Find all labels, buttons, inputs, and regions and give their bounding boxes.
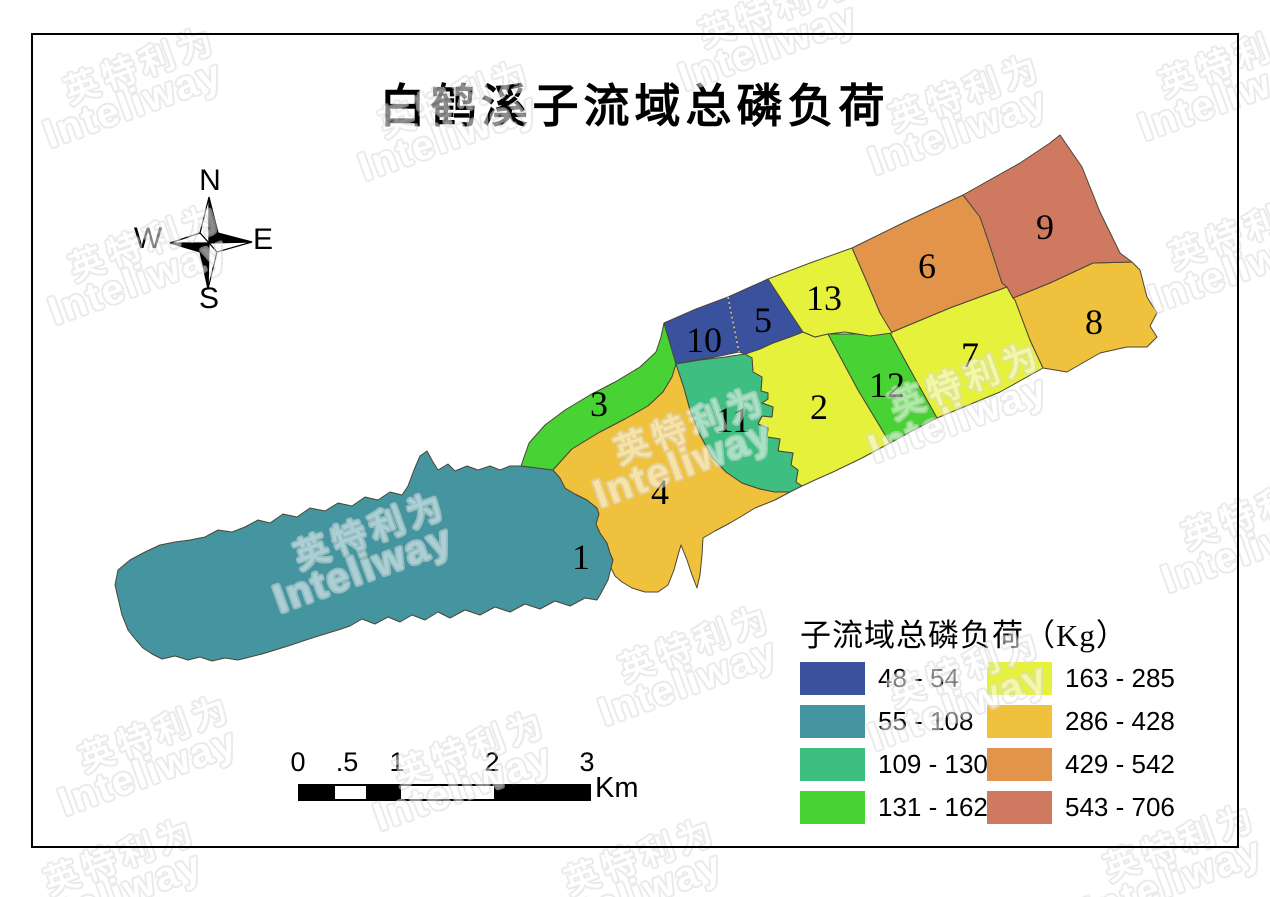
legend-item: 55 - 108 xyxy=(800,705,988,738)
region-label-13: 13 xyxy=(806,278,842,318)
legend-swatch xyxy=(800,662,865,695)
region-label-5: 5 xyxy=(754,300,772,340)
legend-swatch xyxy=(987,705,1052,738)
legend-item: 163 - 285 xyxy=(987,662,1175,695)
region-label-10: 10 xyxy=(686,320,722,360)
region-label-9: 9 xyxy=(1036,207,1054,247)
region-label-2: 2 xyxy=(810,387,828,427)
compass-south-label: S xyxy=(199,282,219,316)
scalebar: 0.5123 Km xyxy=(298,747,658,807)
legend-title: 子流域总磷负荷（Kg） xyxy=(800,610,1220,655)
legend: 子流域总磷负荷（Kg） 48 - 5455 - 108109 - 130131 … xyxy=(800,610,1220,840)
scalebar-unit: Km xyxy=(595,772,639,805)
region-label-8: 8 xyxy=(1085,302,1103,342)
scalebar-tick: .5 xyxy=(336,747,359,778)
scalebar-tick: 1 xyxy=(389,747,404,778)
legend-label: 131 - 162 xyxy=(878,792,988,823)
scalebar-bar xyxy=(298,784,591,801)
page-title: 白鹤溪子流域总磷负荷 xyxy=(31,70,1238,136)
legend-label: 543 - 706 xyxy=(1065,792,1175,823)
scalebar-tick: 3 xyxy=(579,747,594,778)
compass-east-label: E xyxy=(253,223,273,257)
legend-item: 429 - 542 xyxy=(987,748,1175,781)
region-label-1: 1 xyxy=(572,537,590,577)
region-label-7: 7 xyxy=(961,335,979,375)
legend-label: 286 - 428 xyxy=(1065,706,1175,737)
region-1 xyxy=(115,451,613,661)
legend-swatch xyxy=(800,705,865,738)
legend-swatch xyxy=(987,748,1052,781)
legend-col-2: 163 - 285286 - 428429 - 542543 - 706 xyxy=(987,662,1175,834)
legend-swatch xyxy=(800,748,865,781)
legend-col-1: 48 - 5455 - 108109 - 130131 - 162 xyxy=(800,662,988,834)
legend-item: 131 - 162 xyxy=(800,791,988,824)
legend-item: 48 - 54 xyxy=(800,662,988,695)
scalebar-segment xyxy=(366,786,399,799)
region-label-6: 6 xyxy=(918,246,936,286)
compass-rose-icon xyxy=(170,197,252,289)
legend-item: 543 - 706 xyxy=(987,791,1175,824)
legend-item: 109 - 130 xyxy=(800,748,988,781)
region-label-11: 11 xyxy=(716,400,751,440)
region-label-3: 3 xyxy=(590,384,608,424)
legend-label: 109 - 130 xyxy=(878,749,988,780)
region-label-4: 4 xyxy=(651,472,669,512)
scalebar-segment xyxy=(333,786,366,799)
legend-swatch xyxy=(800,791,865,824)
legend-swatch xyxy=(987,662,1052,695)
legend-label: 429 - 542 xyxy=(1065,749,1175,780)
legend-label: 163 - 285 xyxy=(1065,663,1175,694)
scalebar-tick: 0 xyxy=(290,747,305,778)
region-label-12: 12 xyxy=(869,365,905,405)
legend-swatch xyxy=(987,791,1052,824)
scalebar-segment xyxy=(300,786,333,799)
compass-west-label: W xyxy=(134,222,162,256)
scalebar-segment xyxy=(399,786,494,799)
legend-label: 48 - 54 xyxy=(878,663,959,694)
compass-north-label: N xyxy=(199,164,221,198)
legend-label: 55 - 108 xyxy=(878,706,973,737)
map-document: 12345678910111213 白鹤溪子流域总磷负荷 N E S W 子流域… xyxy=(0,0,1270,897)
scalebar-tick: 2 xyxy=(484,747,499,778)
legend-item: 286 - 428 xyxy=(987,705,1175,738)
scalebar-segment xyxy=(494,786,589,799)
